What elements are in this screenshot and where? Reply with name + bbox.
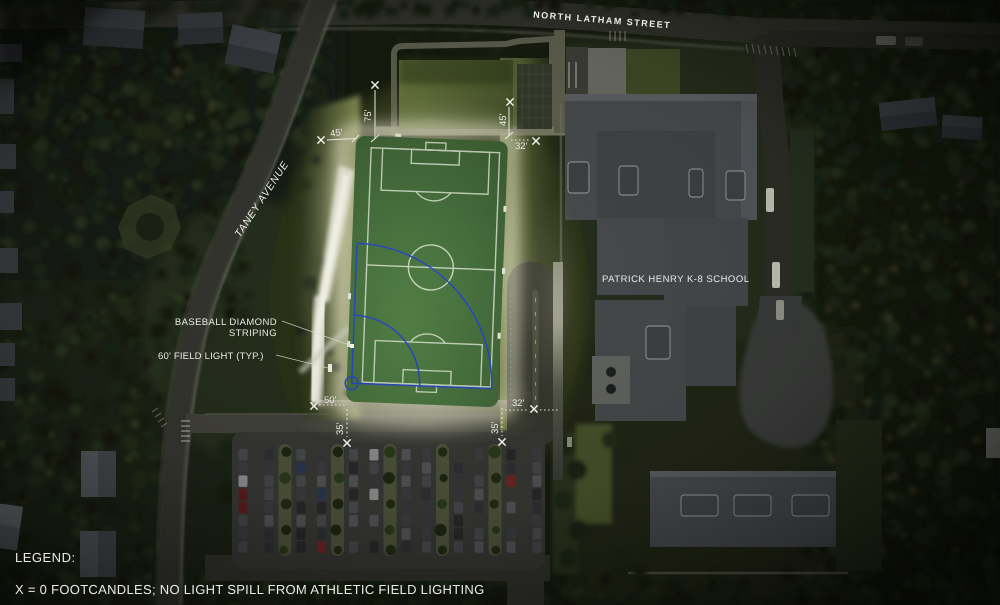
svg-text:35': 35' xyxy=(335,422,346,435)
svg-text:LEGEND:: LEGEND: xyxy=(15,550,76,565)
svg-text:STRIPING: STRIPING xyxy=(229,328,277,339)
svg-text:75': 75' xyxy=(363,109,374,122)
svg-text:35': 35' xyxy=(490,421,501,434)
svg-text:32': 32' xyxy=(512,398,525,409)
svg-text:60' FIELD LIGHT (TYP.): 60' FIELD LIGHT (TYP.) xyxy=(158,351,264,362)
svg-text:45': 45' xyxy=(330,127,344,140)
svg-text:32': 32' xyxy=(515,141,528,152)
svg-text:PATRICK HENRY K-8 SCHOOL: PATRICK HENRY K-8 SCHOOL xyxy=(602,274,750,285)
svg-text:45': 45' xyxy=(498,113,509,126)
svg-text:BASEBALL DIAMOND: BASEBALL DIAMOND xyxy=(175,317,277,328)
svg-text:X = 0 FOOTCANDLES; NO LIGHT SP: X = 0 FOOTCANDLES; NO LIGHT SPILL FROM A… xyxy=(15,582,484,597)
svg-text:50': 50' xyxy=(324,395,337,406)
